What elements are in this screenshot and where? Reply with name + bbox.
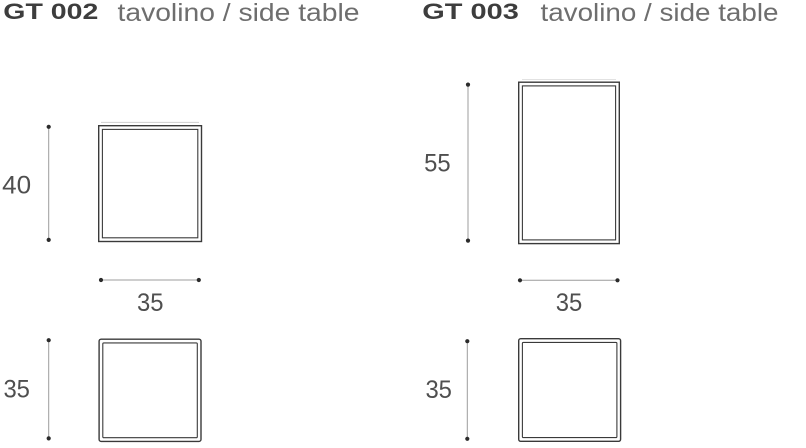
svg-text:GT 002: GT 002 [3,0,98,24]
svg-text:55: 55 [424,150,451,178]
svg-text:40: 40 [2,172,31,200]
svg-text:35: 35 [137,289,164,317]
svg-text:tavolino / side table: tavolino / side table [541,0,779,27]
svg-text:35: 35 [425,376,452,404]
svg-text:35: 35 [556,289,583,317]
svg-text:tavolino / side table: tavolino / side table [118,0,360,27]
svg-text:35: 35 [3,376,30,404]
svg-text:GT 003: GT 003 [422,0,519,24]
